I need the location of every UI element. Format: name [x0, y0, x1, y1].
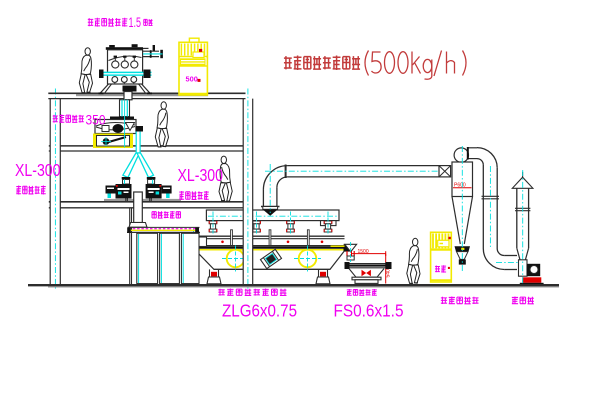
svg-text:1500: 1500: [358, 249, 369, 255]
svg-text:500: 500: [186, 75, 198, 84]
svg-text:350: 350: [86, 113, 106, 128]
svg-text:XL-300: XL-300: [15, 160, 61, 180]
svg-text:ZLG6x0.75: ZLG6x0.75: [222, 301, 297, 321]
svg-text:1.5: 1.5: [129, 15, 142, 30]
svg-text:FS0.6x1.5: FS0.6x1.5: [334, 301, 404, 321]
svg-text:XL-300: XL-300: [178, 165, 224, 185]
svg-text:540: 540: [386, 269, 392, 278]
